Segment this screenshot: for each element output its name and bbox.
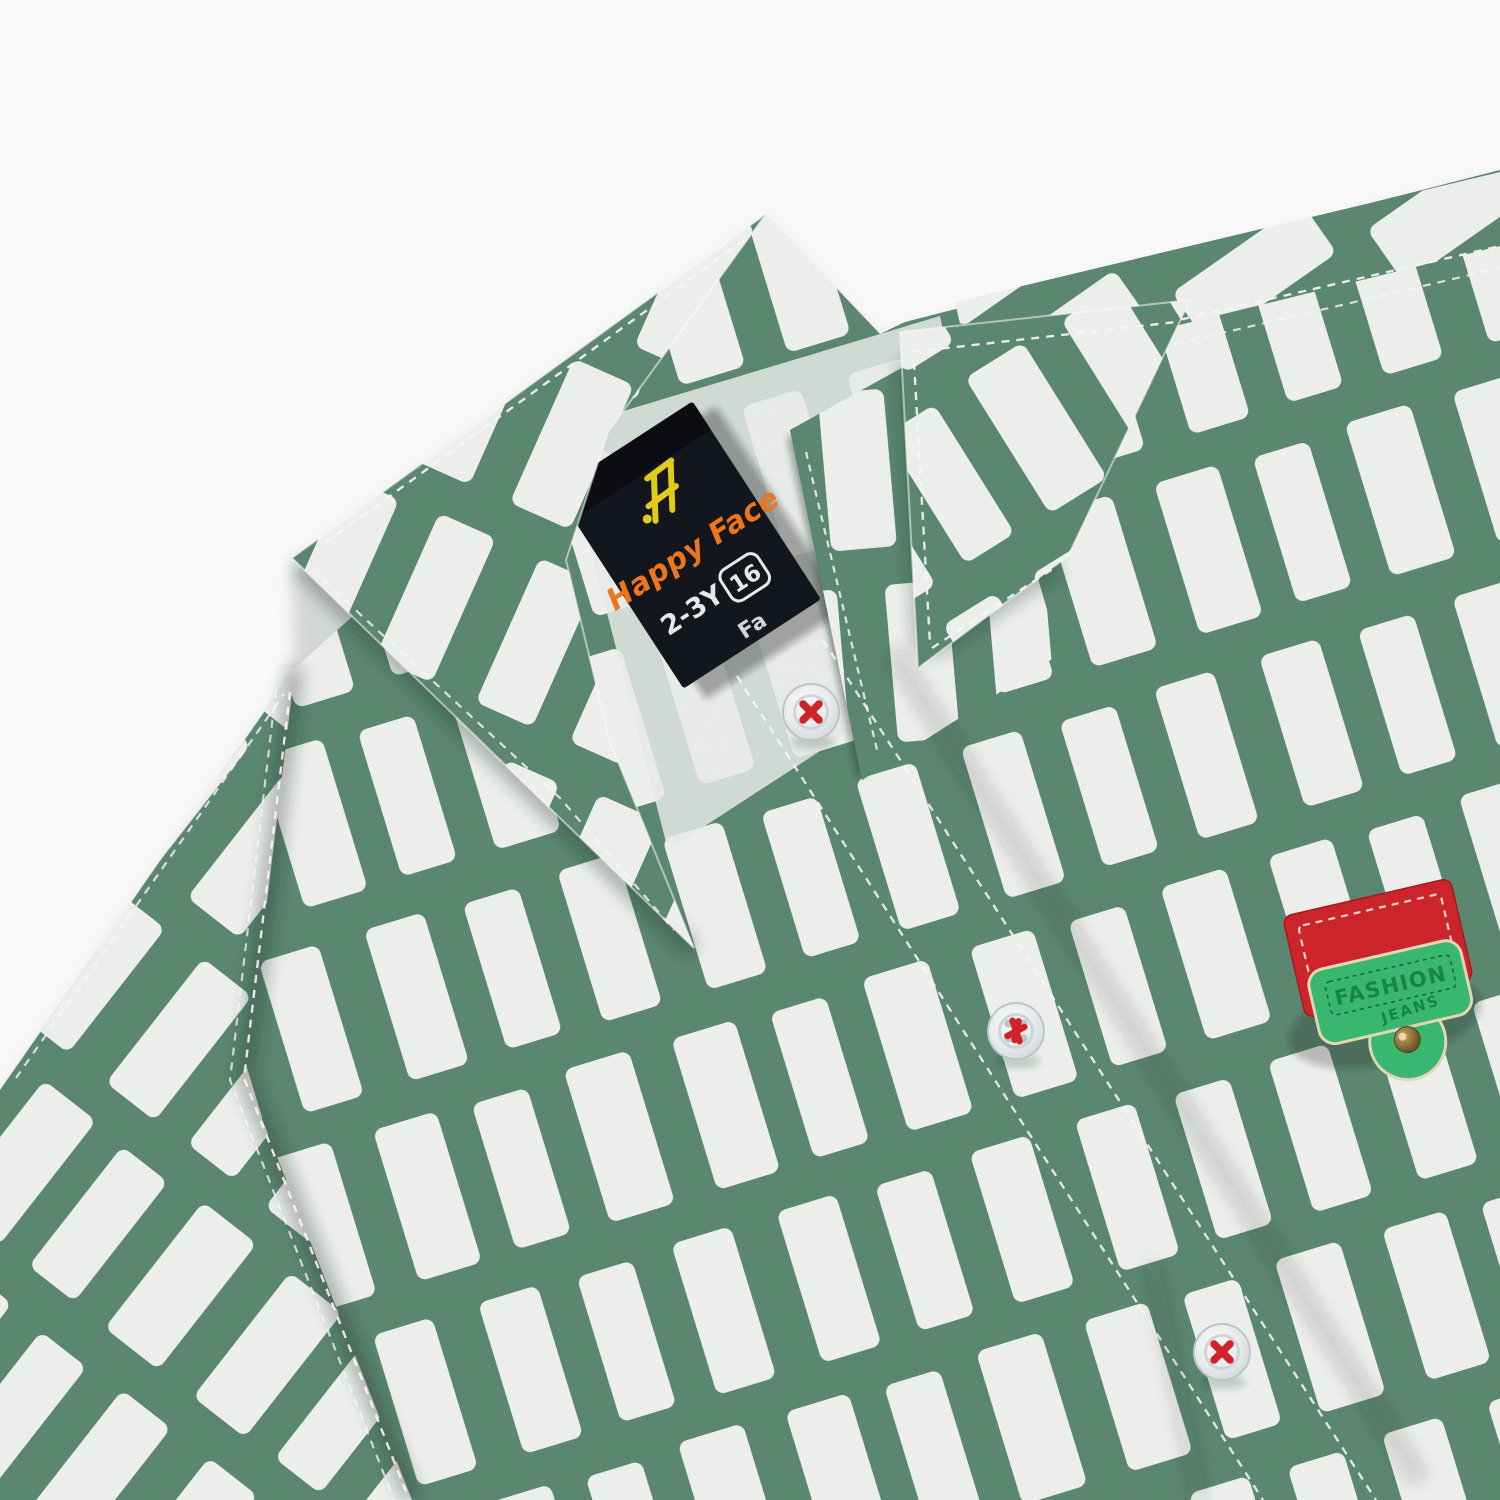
- fabric-texture-overlay: [0, 0, 1500, 1500]
- product-photo: Happy Face 2-3Y 16 Fa: [0, 0, 1500, 1500]
- shirt: Happy Face 2-3Y 16 Fa: [0, 0, 1500, 1500]
- product-photo-stage: Happy Face 2-3Y 16 Fa: [0, 0, 1500, 1500]
